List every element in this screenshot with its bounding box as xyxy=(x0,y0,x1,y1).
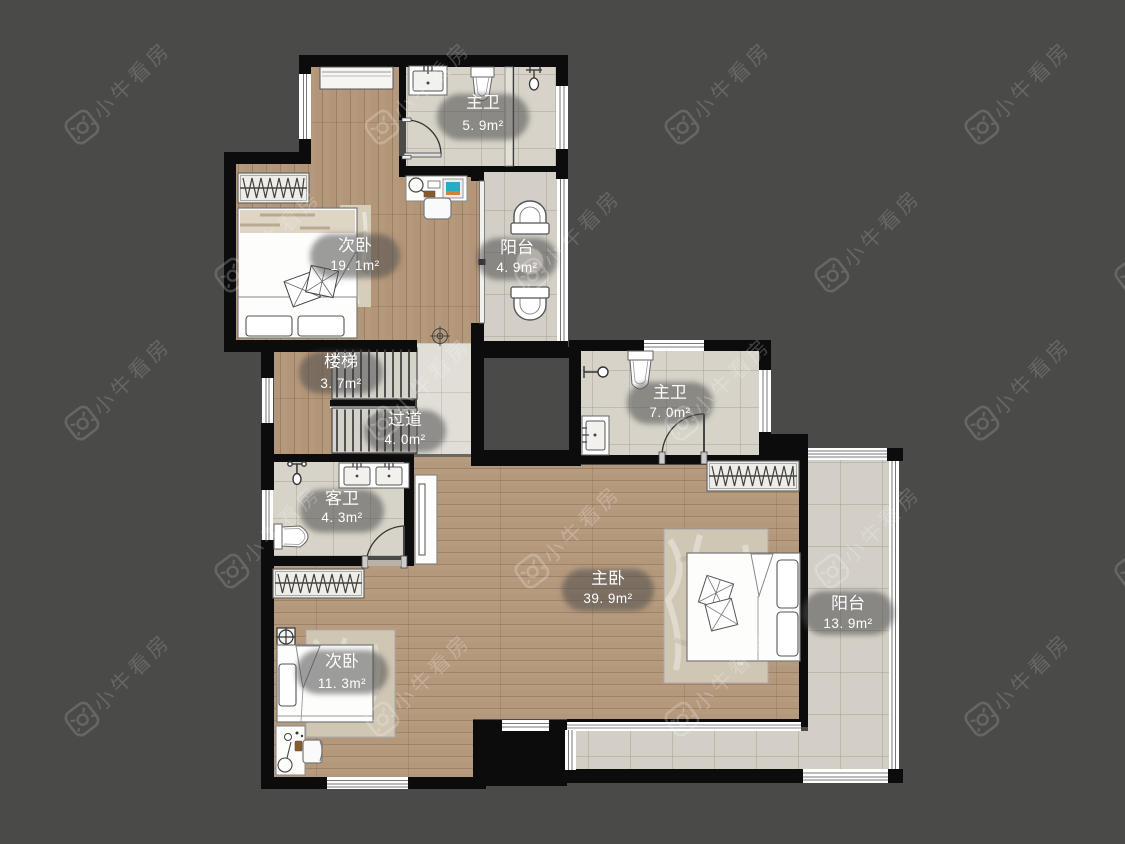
svg-text:5. 9m²: 5. 9m² xyxy=(462,118,503,133)
svg-text:13. 9m²: 13. 9m² xyxy=(823,616,872,631)
svg-text:4. 3m²: 4. 3m² xyxy=(321,510,362,525)
svg-text:19. 1m²: 19. 1m² xyxy=(330,258,379,273)
svg-text:3. 7m²: 3. 7m² xyxy=(320,376,361,391)
svg-text:11. 3m²: 11. 3m² xyxy=(318,676,366,691)
svg-text:39. 9m²: 39. 9m² xyxy=(583,591,632,606)
